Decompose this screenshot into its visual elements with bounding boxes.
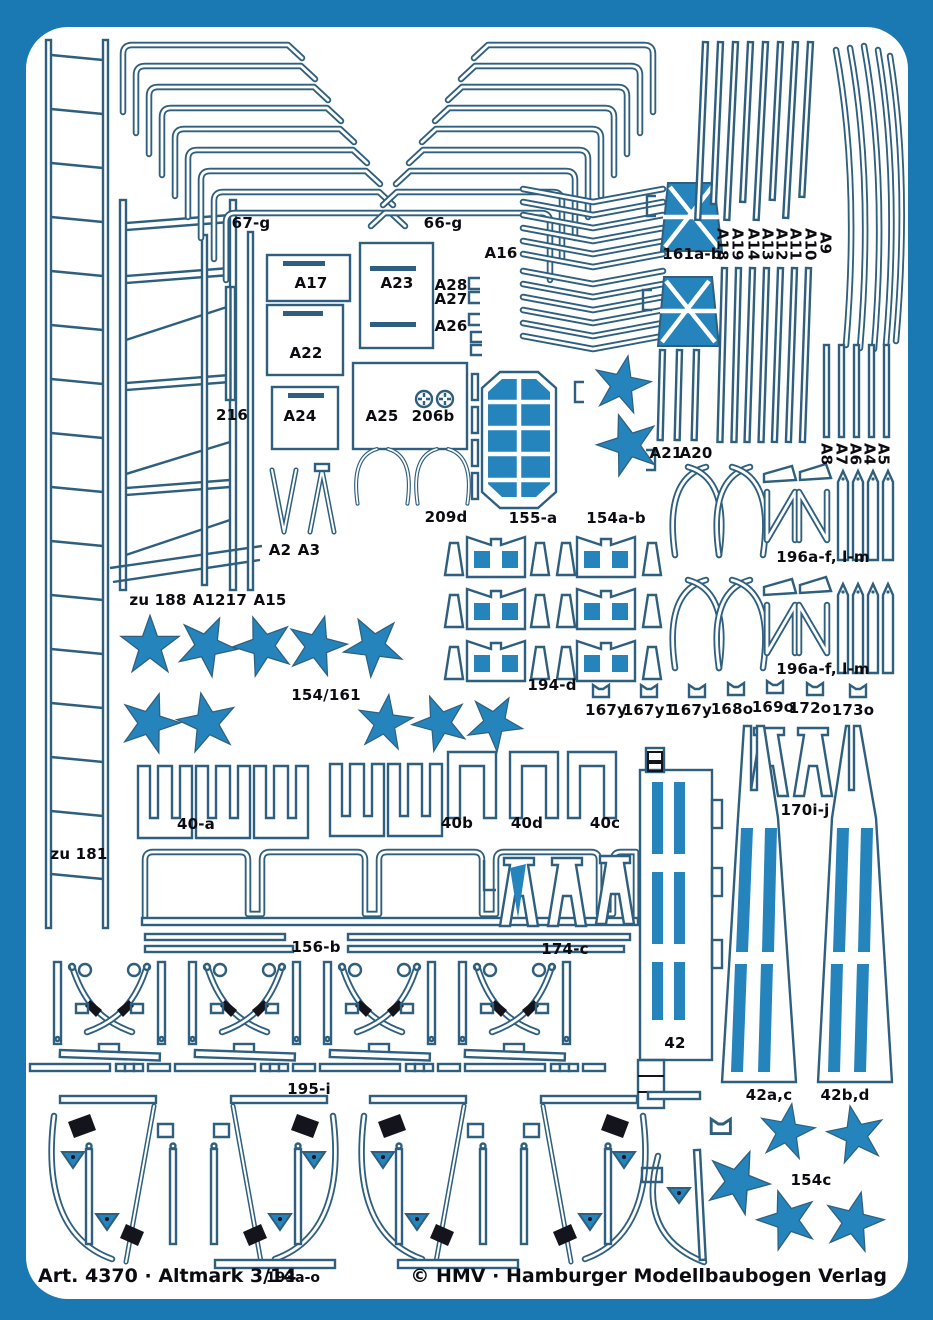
part-label-a1: A1 [193, 592, 215, 609]
part-label-a15: A15 [253, 592, 286, 609]
part-label-a23: A23 [380, 275, 413, 292]
curved-strips-a4-a8 [824, 46, 902, 437]
part-label-154-161: 154/161 [291, 687, 361, 704]
boat-davits-193ao [52, 1092, 731, 1268]
part-label-167y1: 167y1 [623, 702, 676, 719]
part-label-217: 217 [215, 592, 247, 609]
clips-a26-a28 [469, 278, 482, 355]
ladder-zu181 [46, 40, 108, 928]
strip-fan-67g [123, 45, 405, 280]
frame-a22 [267, 305, 343, 375]
publisher-credit: © HMV · Hamburger Modellbaubogen Verlag [410, 1266, 887, 1287]
davit-group-196-2 [673, 577, 893, 673]
ladder-zu188 [110, 200, 262, 590]
davits-209d [356, 449, 469, 504]
part-label-196a-f-1: 196a-f, l-m [776, 549, 869, 566]
vane-parts-194d [445, 537, 661, 681]
part-label-a26: A26 [434, 318, 467, 335]
part-label-zu181: zu 181 [50, 846, 107, 863]
part-label-a19: A19 [729, 228, 746, 260]
part-label-172o: 172o [789, 700, 831, 717]
part-label-42a-c: 42a,c [746, 1087, 793, 1104]
part-label-40d: 40d [511, 815, 543, 832]
davit-assemblies-195i [30, 962, 605, 1071]
davit-group-196-1 [673, 464, 893, 560]
part-label-209d: 209d [425, 509, 468, 526]
bar-216 [226, 287, 235, 400]
part-label-154a-b: 154a-b [586, 510, 646, 527]
part-label-zu188: zu 188 [129, 592, 186, 609]
part-label-a27: A27 [434, 291, 467, 308]
part-label-154c: 154c [790, 1172, 831, 1189]
part-label-66-g: 66-g [424, 215, 463, 232]
part-label-a24: A24 [283, 408, 316, 425]
part-label-167y-1: 167y [585, 702, 627, 719]
part-label-a2: A2 [269, 542, 291, 559]
panel-155a [472, 372, 556, 508]
part-label-40b: 40b [441, 815, 473, 832]
part-label-67-g: 67-g [232, 215, 271, 232]
clips-167-173 [593, 681, 866, 697]
part-label-a9: A9 [817, 232, 834, 254]
part-label-195-i: 195-i [287, 1081, 331, 1098]
part-label-155-a: 155-a [509, 510, 558, 527]
part-label-193a-o: 193a-o [266, 1271, 320, 1286]
part-label-196a-f-2: 196a-f, l-m [776, 661, 869, 678]
part-label-a5: A5 [875, 443, 892, 465]
part-label-194-d: 194-d [527, 677, 576, 694]
v-parts-a2-a3 [272, 464, 334, 532]
part-label-a25: A25 [365, 408, 398, 425]
bracket-40d [510, 752, 558, 818]
part-label-40c: 40c [590, 815, 620, 832]
crane-column-42 [638, 748, 722, 1108]
article-number: Art. 4370 · Altmark 3/14 [38, 1266, 296, 1287]
part-label-161a-b: 161a-b [662, 246, 722, 263]
part-label-168o: 168o [711, 701, 753, 718]
part-label-a20: A20 [679, 445, 712, 462]
part-label-40-a: 40-a [177, 816, 215, 833]
circles-206b [416, 391, 453, 407]
part-label-173o: 173o [832, 702, 874, 719]
part-label-a17: A17 [294, 275, 327, 292]
photoetch-sheet-page: { "sheet": { "kind": "photo-etch parts s… [0, 0, 933, 1320]
strips-a9-a19 [695, 42, 813, 220]
part-label-156-b: 156-b [291, 939, 340, 956]
part-label-42b-d: 42b,d [820, 1087, 869, 1104]
part-label-a21: A21 [649, 445, 682, 462]
part-label-a22: A22 [289, 345, 322, 362]
part-label-42: 42 [664, 1035, 685, 1052]
part-label-216: 216 [216, 407, 248, 424]
part-label-170i-j: 170i-j [780, 802, 829, 819]
part-label-a3: A3 [298, 542, 320, 559]
part-label-206b: 206b [412, 408, 455, 425]
frame-a23 [360, 243, 433, 348]
part-label-174-c: 174-c [541, 941, 588, 958]
part-label-167y-2: 167y [670, 702, 712, 719]
brackets-40a [138, 766, 308, 838]
part-label-a16: A16 [484, 245, 517, 262]
bracket-40c [568, 752, 616, 818]
